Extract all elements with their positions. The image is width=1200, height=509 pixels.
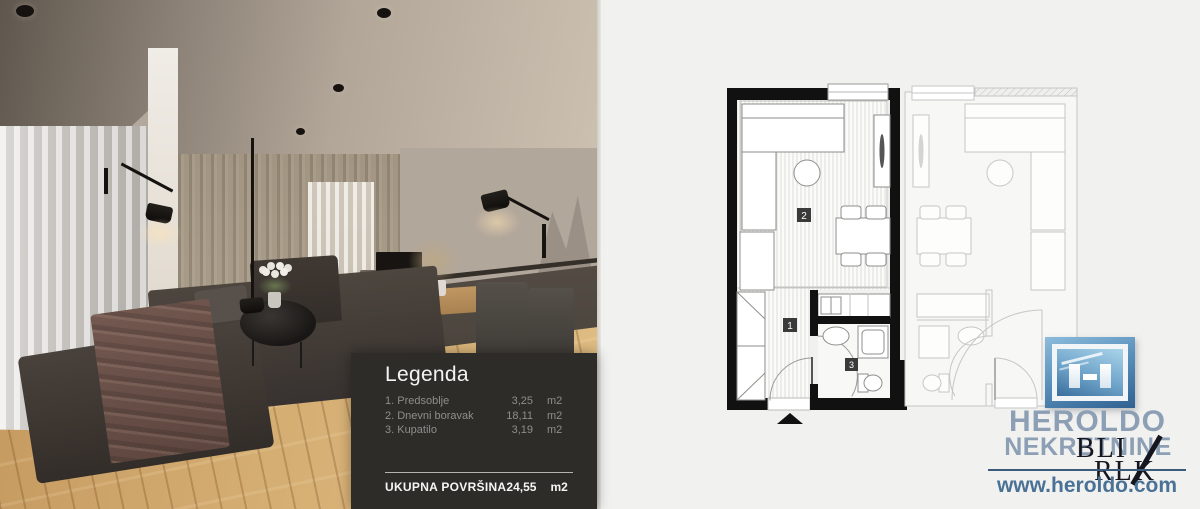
coffee-table-leg xyxy=(300,342,302,368)
plan-coffee-table xyxy=(794,160,820,186)
wall-lamp-mount xyxy=(104,168,108,194)
room-name: 2. Dnevni boravak xyxy=(385,409,485,424)
room-name: 3. Kupatilo xyxy=(385,423,485,438)
logo-inner-frame xyxy=(1052,344,1128,401)
legend-title: Legenda xyxy=(385,363,469,387)
wall-lamp-shade xyxy=(239,297,264,314)
white-flowers xyxy=(262,268,270,276)
area-unit: m2 xyxy=(547,409,573,424)
dining-chair xyxy=(476,282,528,362)
room-label-living: 2 xyxy=(801,211,807,222)
dining-chair xyxy=(528,288,574,358)
brand-website: www.heroldo.com xyxy=(988,474,1186,498)
real-estate-flyer: 1 2 3 xyxy=(0,0,1200,509)
logo-building-left xyxy=(1069,364,1080,388)
wall-lamp-rod xyxy=(251,138,254,303)
wall-lamp-mount xyxy=(542,224,546,258)
plan-wardrobe xyxy=(874,115,890,187)
legend-rows: 1. Predsoblje 3,25 m2 2. Dnevni boravak … xyxy=(385,394,573,438)
flower-vase xyxy=(268,292,281,308)
room-name: 1. Predsoblje xyxy=(385,394,485,409)
legend-row: 2. Dnevni boravak 18,11 m2 xyxy=(385,409,573,424)
window xyxy=(828,84,888,100)
area-unit: m2 xyxy=(547,423,573,438)
ceiling-spotlight xyxy=(296,128,305,135)
ceiling-spotlight xyxy=(333,84,344,92)
plan-kitchen xyxy=(818,294,890,317)
throw-blanket xyxy=(90,298,230,463)
room-area: 18,11 xyxy=(485,409,533,424)
plan-hall-wardrobe xyxy=(737,292,765,400)
legend-divider xyxy=(385,472,573,473)
room-label-bathroom: 3 xyxy=(849,360,854,370)
unit-floorplan-main: 1 2 3 xyxy=(727,84,907,424)
ceiling-spotlight xyxy=(377,8,391,18)
total-area: 24,55 xyxy=(506,480,536,494)
brand-underline xyxy=(988,469,1186,471)
floor-plan: 1 2 3 xyxy=(705,78,1095,438)
room-area: 3,19 xyxy=(485,423,533,438)
room-area: 3,25 xyxy=(485,394,533,409)
logo-building-bridge xyxy=(1083,374,1097,380)
lamp-glow xyxy=(138,218,182,248)
legend-row: 3. Kupatilo 3,19 m2 xyxy=(385,423,573,438)
photo-right-edge xyxy=(597,0,601,509)
brand-name-line1: HEROLDO xyxy=(985,408,1190,436)
total-label: UKUPNA POVRŠINA xyxy=(385,480,506,494)
lamp-glow xyxy=(474,206,520,238)
area-unit: m2 xyxy=(547,394,573,409)
logo-building-right xyxy=(1100,364,1111,388)
entrance-arrow xyxy=(777,413,803,424)
legend-row: 1. Predsoblje 3,25 m2 xyxy=(385,394,573,409)
heroldo-logo-icon xyxy=(1045,337,1135,408)
total-unit: m2 xyxy=(550,480,576,494)
legend-card: Legenda 1. Predsoblje 3,25 m2 2. Dnevni … xyxy=(351,353,597,509)
coffee-table-leg xyxy=(252,340,254,366)
ceiling-spotlight xyxy=(16,5,34,17)
legend-total-row: UKUPNA POVRŠINA 24,55 m2 xyxy=(385,480,573,494)
room-label-hallway: 1 xyxy=(787,321,793,332)
